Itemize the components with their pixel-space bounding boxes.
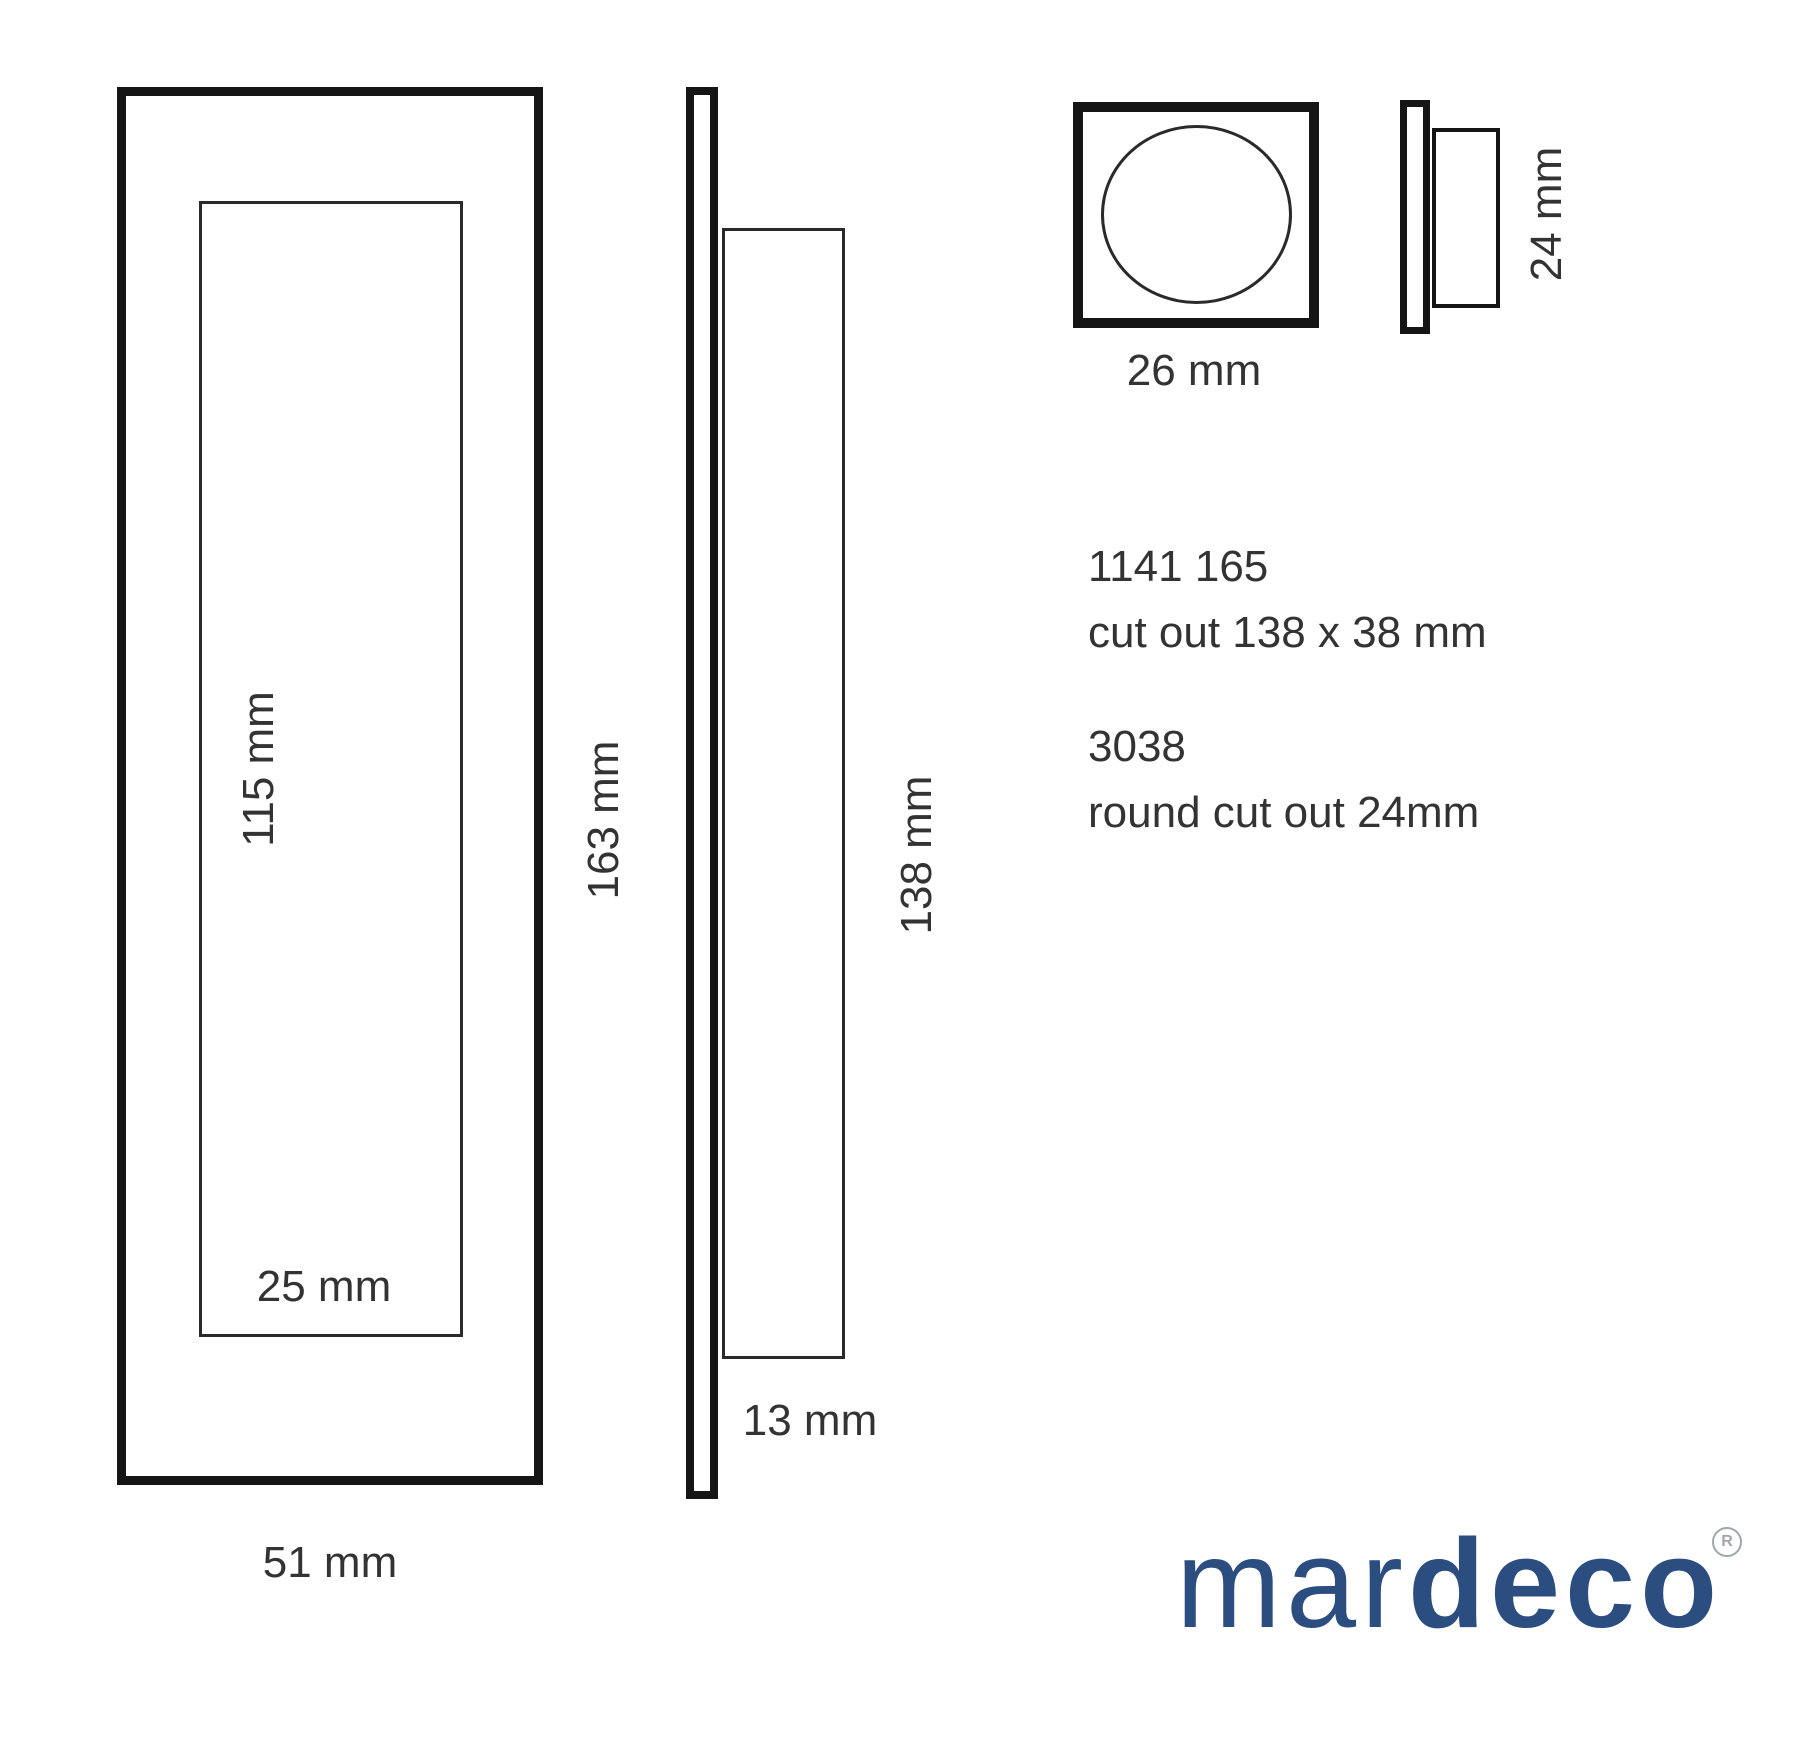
dimension-round-depth: 24 mm bbox=[1522, 147, 1572, 281]
dimension-recess-width: 25 mm bbox=[257, 1262, 391, 1312]
product-1-info: 1141 165 cut out 138 x 38 mm bbox=[1088, 534, 1708, 666]
technical-drawing-page: 115 mm 25 mm 51 mm 163 mm 138 mm 13 mm 2… bbox=[0, 0, 1800, 1745]
round-pull-side-bowl bbox=[1432, 128, 1500, 308]
registered-trademark-icon: R bbox=[1712, 1527, 1742, 1557]
dimension-pocket-depth: 13 mm bbox=[743, 1396, 877, 1446]
product-2-code: 3038 bbox=[1088, 722, 1186, 771]
product-2-cutout: round cut out 24mm bbox=[1088, 788, 1479, 837]
logo-text-mar: mar bbox=[1176, 1513, 1408, 1654]
dimension-recess-height: 115 mm bbox=[234, 691, 284, 847]
round-pull-circle bbox=[1101, 125, 1292, 304]
side-view-pocket bbox=[722, 228, 845, 1359]
dimension-pocket-height: 138 mm bbox=[892, 776, 942, 935]
product-2-info: 3038 round cut out 24mm bbox=[1088, 714, 1708, 846]
dimension-overall-height: 163 mm bbox=[579, 741, 629, 900]
product-1-cutout: cut out 138 x 38 mm bbox=[1088, 608, 1487, 657]
product-1-code: 1141 165 bbox=[1088, 542, 1268, 591]
mardeco-logo: mardeco bbox=[1176, 1521, 1722, 1647]
round-pull-side-faceplate bbox=[1400, 100, 1430, 334]
logo-text-deco: deco bbox=[1408, 1513, 1722, 1654]
dimension-overall-width: 51 mm bbox=[263, 1538, 397, 1588]
dimension-round-face-width: 26 mm bbox=[1127, 346, 1261, 396]
product-info-block: 1141 165 cut out 138 x 38 mm 3038 round … bbox=[1088, 534, 1708, 846]
side-view-faceplate bbox=[686, 87, 718, 1499]
